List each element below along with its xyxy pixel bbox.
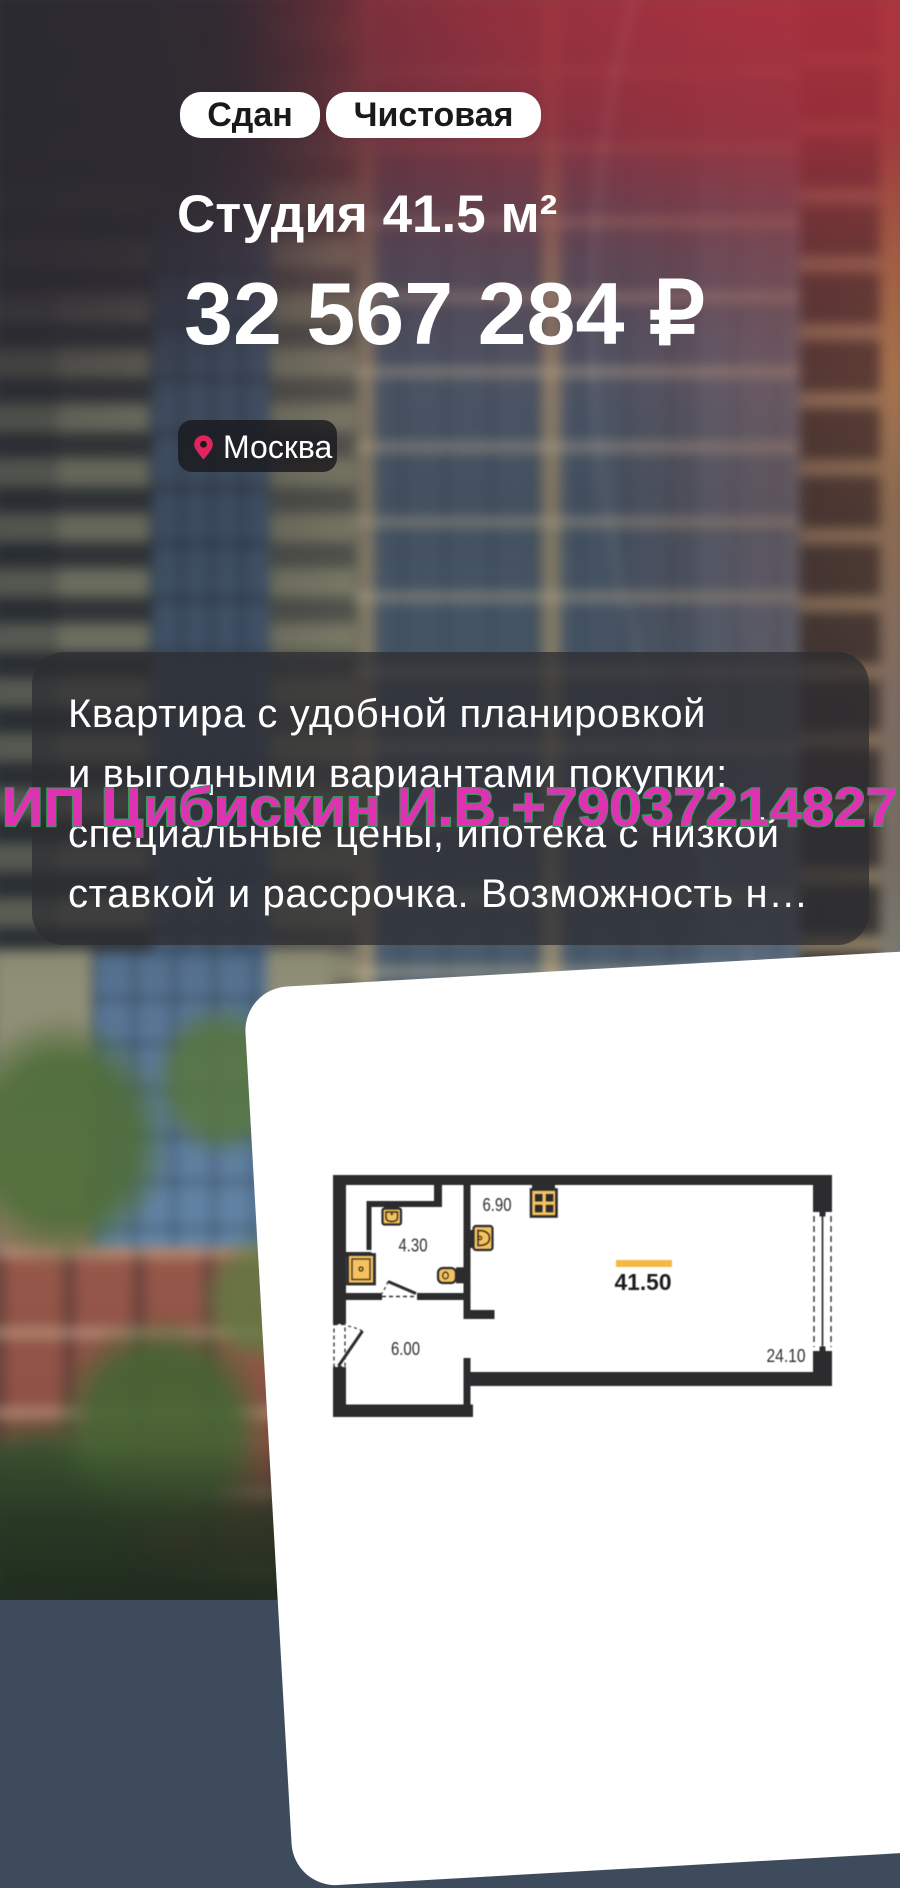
svg-text:24.10: 24.10 [767,1346,806,1366]
svg-text:4.30: 4.30 [399,1236,428,1256]
svg-text:41.50: 41.50 [615,1269,672,1295]
svg-text:6.00: 6.00 [391,1339,420,1359]
svg-text:6.90: 6.90 [483,1195,512,1215]
svg-text:ИП Цибискин И.В.+79037214827: ИП Цибискин И.В.+79037214827 [2,776,898,838]
